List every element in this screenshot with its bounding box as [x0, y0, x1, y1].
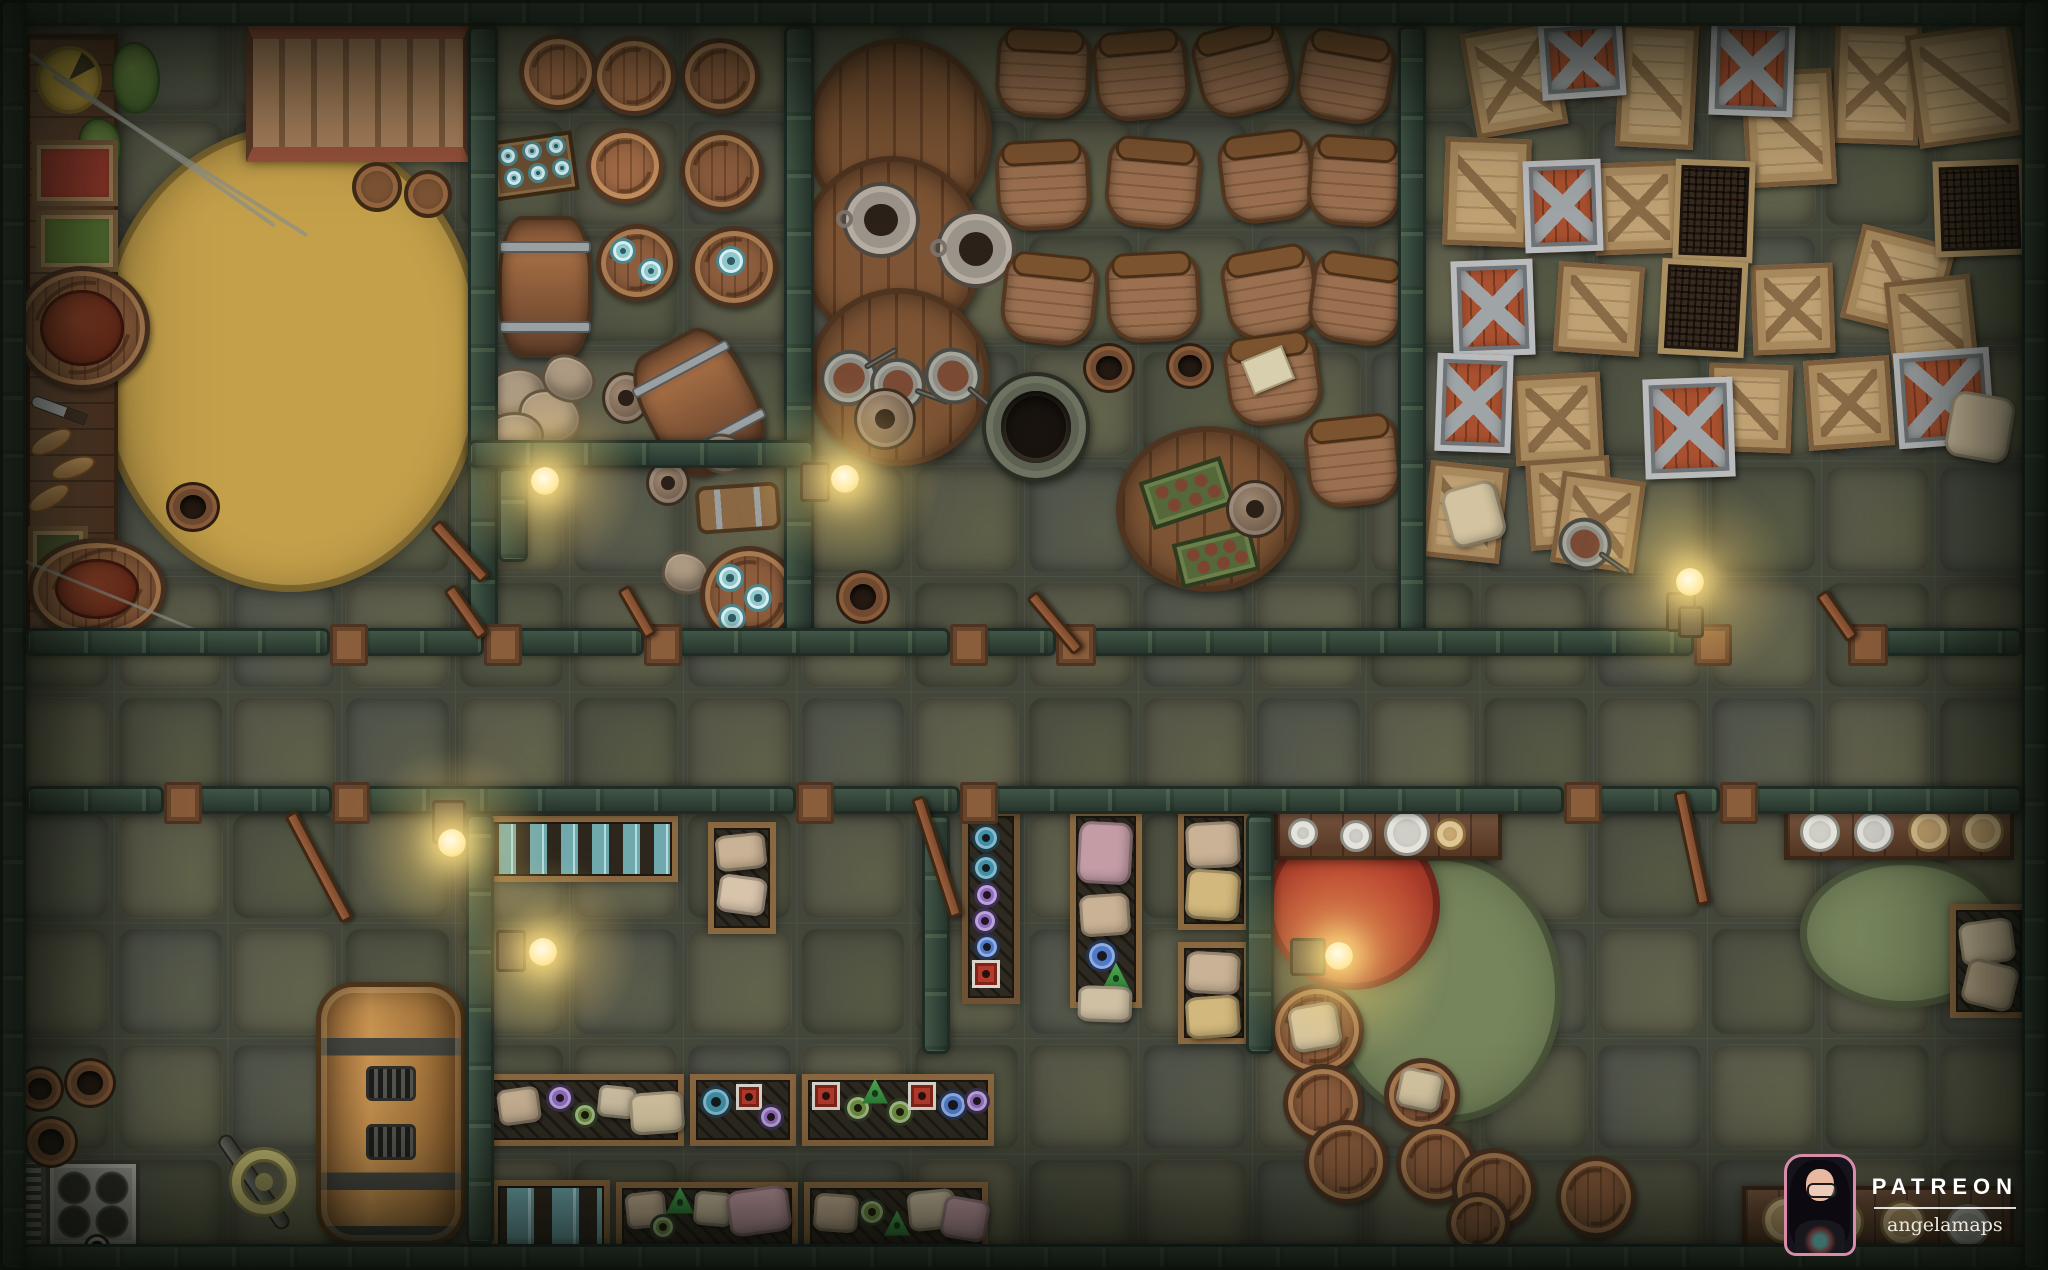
stone-wall: [26, 786, 164, 814]
crate: [1750, 263, 1835, 356]
stone-wall: [784, 26, 814, 642]
cloth: [725, 1184, 793, 1238]
patreon-badge: PATREON angelamaps: [1784, 1154, 2018, 1256]
crate: [1803, 355, 1895, 451]
staircase: [246, 24, 470, 162]
vialbox: [812, 1082, 840, 1110]
potion: [938, 1090, 968, 1120]
cup: [498, 146, 518, 166]
barrel: [586, 128, 664, 204]
pot: [1166, 343, 1214, 389]
potion: [974, 934, 1000, 960]
door: [164, 782, 202, 824]
cup: [522, 141, 542, 161]
crate: [1553, 261, 1645, 357]
herb: [112, 42, 160, 114]
cauldron: [982, 372, 1090, 482]
potion: [972, 824, 1000, 852]
cloth: [1185, 994, 1242, 1040]
cloth: [629, 1090, 686, 1136]
crate: [1708, 19, 1795, 118]
chair: [1102, 134, 1203, 232]
cloth: [813, 1193, 860, 1234]
patreon-brand: PATREON: [1872, 1174, 2018, 1200]
floor-slab: [687, 928, 792, 1035]
plate: [1962, 810, 2004, 852]
stone-wall: [0, 0, 26, 1270]
floor-slab: [1825, 1044, 1930, 1151]
stone-wall: [466, 814, 494, 1244]
potion: [650, 1214, 676, 1240]
mount: [1678, 606, 1704, 638]
crate: [1537, 17, 1626, 101]
plate: [1340, 820, 1372, 852]
barrel: [519, 34, 597, 110]
author-name: angelamaps: [1872, 1214, 2018, 1236]
mount: [800, 462, 830, 502]
potion: [858, 1198, 886, 1226]
cloth: [939, 1194, 992, 1243]
barrel: [1556, 1156, 1636, 1238]
avatar-shirt: [1795, 1220, 1845, 1255]
cloth: [1286, 1000, 1343, 1054]
potion: [758, 1104, 784, 1130]
pot: [1083, 343, 1135, 393]
author-avatar: [1784, 1154, 1856, 1256]
stone-wall: [0, 1244, 2048, 1270]
plate: [1800, 812, 1840, 852]
plate: [1384, 810, 1430, 856]
potion: [1086, 940, 1118, 972]
cup: [716, 246, 746, 276]
stone-wall: [2022, 0, 2048, 1270]
crate: [1512, 372, 1605, 466]
jug: [1226, 480, 1284, 538]
cloth: [1076, 821, 1133, 886]
chair: [998, 249, 1101, 348]
floor-slab: [1142, 1044, 1247, 1151]
crate: [1905, 21, 2026, 149]
stone-wall: [828, 786, 960, 814]
stone-wall: [468, 26, 498, 642]
pot: [24, 1116, 78, 1168]
barrel: [596, 224, 678, 302]
potion: [546, 1084, 574, 1112]
cup: [716, 564, 744, 592]
potion: [700, 1086, 732, 1118]
door: [796, 782, 834, 824]
floor-slab: [1597, 1044, 1702, 1151]
cloth: [716, 873, 769, 917]
door: [960, 782, 998, 824]
crate: [1642, 376, 1735, 479]
stone-wall: [1596, 786, 1720, 814]
floor-slab: [914, 466, 1019, 573]
crate: [1658, 258, 1749, 358]
stone-wall: [992, 786, 1564, 814]
stone-wall: [1752, 786, 2022, 814]
chair: [1090, 26, 1191, 124]
suitcase: [694, 481, 781, 535]
cup: [546, 136, 566, 156]
mount: [1290, 938, 1326, 976]
barrel: [680, 38, 760, 114]
vialbox: [736, 1084, 762, 1110]
stone-wall: [26, 628, 330, 656]
cloth: [1077, 985, 1132, 1023]
potion: [974, 882, 1000, 908]
stone-wall: [196, 786, 332, 814]
stone-wall: [676, 628, 950, 656]
stone-wall: [0, 0, 2048, 26]
crate: [1615, 22, 1699, 150]
valve-wheel: [232, 1150, 296, 1214]
floor-slab: [1711, 1044, 1816, 1151]
door: [332, 782, 370, 824]
stone-wall: [982, 628, 1056, 656]
door: [1720, 782, 1758, 824]
standing-barrel: [498, 216, 592, 358]
stone-wall: [1882, 628, 2022, 656]
chair: [1104, 250, 1203, 345]
tomato-crate: [32, 140, 118, 206]
door: [484, 624, 522, 666]
cloth: [496, 1085, 543, 1126]
stool: [404, 170, 452, 218]
crate: [1434, 353, 1513, 454]
jug: [854, 388, 916, 450]
door: [950, 624, 988, 666]
watermark-divider: [1874, 1207, 2016, 1209]
plate: [1908, 810, 1950, 852]
chair: [1304, 248, 1410, 350]
stone-wall: [1090, 628, 1694, 656]
stool: [352, 162, 402, 212]
bottle-rack: [486, 816, 678, 882]
vialbox: [972, 960, 1000, 988]
floor-slab: [1711, 466, 1816, 573]
floor-slab: [573, 928, 678, 1035]
crate: [1932, 158, 2027, 257]
copper-still: [316, 982, 466, 1246]
floor-slab: [118, 928, 223, 1035]
barrel: [1304, 1120, 1388, 1204]
cloth: [1185, 821, 1241, 870]
chair: [1215, 127, 1319, 228]
stone-wall: [468, 440, 814, 468]
chair: [994, 138, 1093, 233]
battle-map: PATREON angelamaps: [0, 0, 2048, 1270]
mount: [496, 930, 526, 972]
lamp-bulb: [1325, 942, 1353, 970]
door: [1564, 782, 1602, 824]
lamp-bulb: [531, 467, 559, 495]
floor-slab: [1711, 928, 1816, 1035]
watermark-text: PATREON angelamaps: [1872, 1174, 2018, 1236]
stone-wall: [1246, 814, 1274, 1054]
chair: [1291, 25, 1399, 130]
barrel: [592, 36, 676, 116]
potion: [972, 908, 998, 934]
chair: [1305, 133, 1405, 229]
crate: [1450, 259, 1535, 358]
barrel: [680, 130, 764, 212]
stone-wall: [1398, 26, 1426, 642]
cloth: [1943, 389, 2017, 465]
chair: [1302, 411, 1405, 510]
crate: [1672, 159, 1756, 264]
crate: [1442, 137, 1532, 248]
potion: [964, 1088, 990, 1114]
floor-slab: [1825, 466, 1930, 573]
cooking-pot: [166, 482, 220, 532]
cloth: [1185, 951, 1241, 996]
lamp-bulb: [831, 465, 859, 493]
cup: [638, 258, 664, 284]
pot: [836, 570, 890, 624]
cloth: [714, 831, 767, 872]
cup: [504, 168, 524, 188]
sausage-barrel: [14, 266, 150, 390]
cloth: [1184, 868, 1241, 922]
stone-wall: [364, 786, 796, 814]
avatar-glasses: [1807, 1183, 1837, 1199]
floor-slab: [118, 813, 223, 920]
cup: [528, 163, 548, 183]
produce-crate: [36, 210, 118, 272]
stone-wall: [498, 468, 528, 562]
floor-slab: [1597, 928, 1702, 1035]
plate: [1854, 812, 1894, 852]
stone-wall: [516, 628, 644, 656]
floor-slab: [118, 1044, 223, 1151]
floor-slab: [1028, 1044, 1133, 1151]
floor-slab: [801, 928, 906, 1035]
cup: [610, 238, 636, 264]
cup: [744, 584, 772, 612]
lamp-bulb: [529, 938, 557, 966]
floor-slab: [801, 813, 906, 920]
potion: [572, 1102, 598, 1128]
cloth: [1079, 892, 1132, 937]
crate: [1522, 159, 1603, 254]
vialbox: [908, 1082, 936, 1110]
lamp-bulb: [1676, 568, 1704, 596]
plate: [1434, 818, 1466, 850]
cup: [552, 158, 572, 178]
lamp-bulb: [438, 829, 466, 857]
potion: [972, 854, 1000, 882]
door: [330, 624, 368, 666]
stone-wall: [362, 628, 484, 656]
plate: [1288, 818, 1318, 848]
pot: [64, 1058, 116, 1108]
tankard: [842, 182, 920, 258]
chair: [994, 26, 1093, 121]
crate: [1592, 160, 1683, 255]
